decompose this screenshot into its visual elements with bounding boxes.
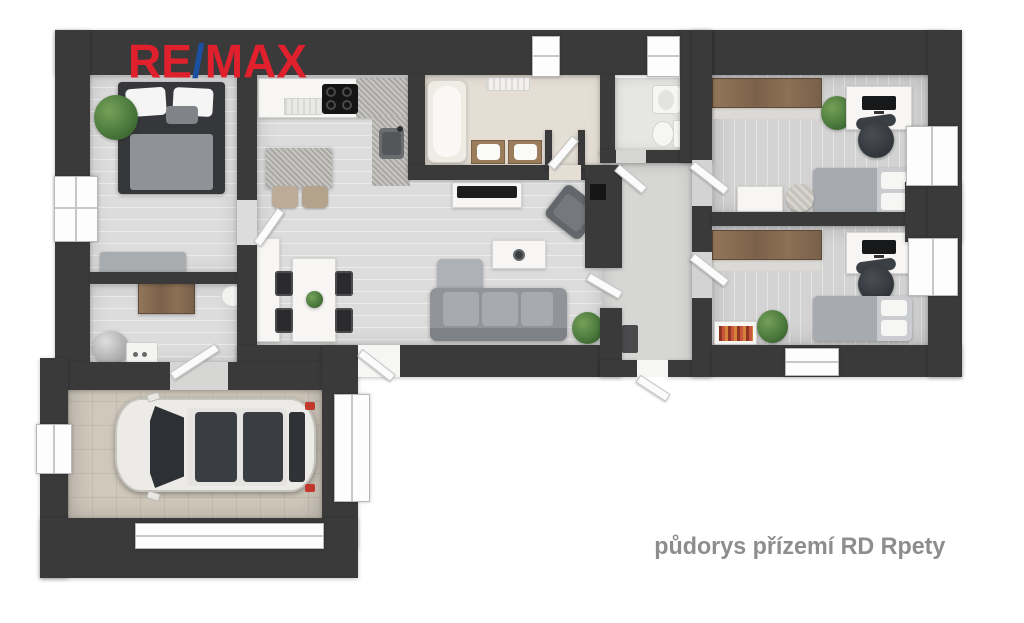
bar-stool: [302, 186, 328, 208]
double-bed: [118, 82, 225, 194]
remax-logo: RE/MAX: [128, 38, 307, 85]
car-rear-window: [289, 412, 305, 482]
shoe-cabinet: [622, 325, 638, 353]
window-bar: [932, 239, 934, 295]
single-bed: [813, 296, 912, 341]
vanity-unit: [508, 140, 542, 164]
window-bar: [351, 395, 353, 501]
monitor-stand: [874, 255, 884, 258]
wc-washbasin: [652, 85, 681, 114]
bathtub: [427, 80, 467, 163]
garage-door: [135, 523, 324, 549]
washer-knob: [142, 352, 147, 357]
cooktop: [322, 84, 358, 114]
decor-bowl: [513, 249, 525, 261]
dining-chair: [335, 271, 353, 296]
burner: [342, 100, 352, 110]
accent-pillow: [166, 106, 198, 124]
wall-bath-door-stub: [578, 130, 585, 168]
plant-icon: [572, 312, 603, 344]
fireplace-niche: [590, 184, 606, 200]
corner-sofa: [430, 288, 567, 341]
car: [115, 398, 316, 492]
monitor: [862, 240, 896, 254]
kitchen-sink: [379, 128, 404, 159]
burner: [326, 100, 336, 110]
monitor-stand: [874, 111, 884, 114]
plant-icon: [757, 310, 788, 343]
study2-south-window: [785, 348, 839, 376]
window-bar: [533, 55, 559, 57]
basin-bowl: [658, 90, 674, 110]
counter-granite: [356, 78, 410, 118]
tv: [457, 186, 517, 198]
washbasin: [514, 144, 537, 160]
wall-bath-left: [408, 75, 425, 170]
monitor: [862, 96, 896, 110]
wall-wc-left: [600, 75, 615, 155]
garage-door-line: [136, 535, 323, 537]
bed-blanket: [813, 168, 877, 214]
wood-desk: [138, 282, 195, 314]
bathtub-basin: [433, 86, 461, 157]
study1-window: [906, 126, 958, 186]
bookshelf: [714, 321, 757, 345]
floor-plan: RE/MAX půdorys přízemí RD Rpety: [0, 0, 1024, 623]
water-heater: [93, 331, 129, 365]
duvet: [130, 134, 213, 190]
radiator: [486, 77, 530, 91]
office-chair: [858, 122, 894, 158]
single-bed: [813, 168, 912, 214]
logo-max: MAX: [205, 34, 307, 87]
bedroom-window: [54, 176, 98, 242]
pillow: [881, 172, 907, 189]
washer-knob: [133, 352, 138, 357]
vanity-unit: [471, 140, 505, 164]
table-plant-icon: [306, 291, 323, 308]
logo-slash-icon: /: [192, 34, 205, 87]
top-window-1: [532, 36, 560, 77]
top-window-2: [647, 36, 680, 77]
car-sunroof-panel: [195, 412, 237, 482]
wc-doorway: [616, 150, 646, 163]
window-bar: [786, 361, 838, 363]
pillow: [881, 320, 907, 336]
toilet: [652, 118, 681, 150]
study2-window: [908, 238, 958, 296]
toilet-bowl: [652, 121, 674, 147]
kitchen-island: [266, 148, 332, 188]
sofa-cushion: [521, 292, 553, 326]
sink-basin: [382, 132, 401, 155]
entrance-doorway: [637, 360, 668, 377]
garage-left-window: [36, 424, 72, 474]
wall-right: [928, 30, 962, 377]
knit-pouf: [786, 184, 814, 212]
burner: [342, 87, 352, 97]
logo-re: RE: [128, 34, 192, 87]
garage-right-window: [334, 394, 370, 502]
sofa-cushion: [482, 292, 518, 326]
car-taillight: [305, 402, 315, 410]
bar-stool: [272, 186, 298, 208]
bedroom-doorway: [237, 200, 257, 245]
wall-entry-bottom-left: [600, 360, 637, 377]
sofa-backrest: [430, 328, 567, 341]
dining-chair: [275, 308, 293, 333]
window-bar: [75, 177, 77, 241]
car-windshield: [150, 406, 184, 488]
burner: [326, 87, 336, 97]
sofa-cushion: [443, 292, 479, 326]
wardrobe: [712, 230, 822, 260]
books: [719, 326, 753, 341]
bed-blanket: [813, 296, 877, 341]
dining-chair: [335, 308, 353, 333]
pillow: [881, 193, 907, 210]
wardrobe-front: [712, 260, 822, 271]
car-taillight: [305, 484, 315, 492]
plan-caption: půdorys přízemí RD Rpety: [645, 533, 946, 561]
wardrobe-front: [712, 108, 822, 119]
car-sunroof-panel: [243, 412, 283, 482]
window-bar: [931, 127, 933, 185]
faucet: [397, 126, 403, 132]
dish-rack: [284, 98, 322, 115]
entrance-door: [636, 375, 671, 402]
washbasin: [477, 144, 500, 160]
window-bar: [648, 55, 679, 57]
wall-wc-bottom: [600, 150, 692, 163]
pillow: [881, 300, 907, 316]
dining-chair: [275, 271, 293, 296]
wall-rooms-divider: [712, 212, 928, 226]
wardrobe: [712, 78, 822, 108]
window-bar: [53, 425, 55, 473]
plant-icon: [94, 95, 138, 140]
nightstand: [737, 186, 783, 212]
wall-living-hall: [585, 165, 622, 268]
wall-bedroom-hall: [90, 272, 237, 284]
